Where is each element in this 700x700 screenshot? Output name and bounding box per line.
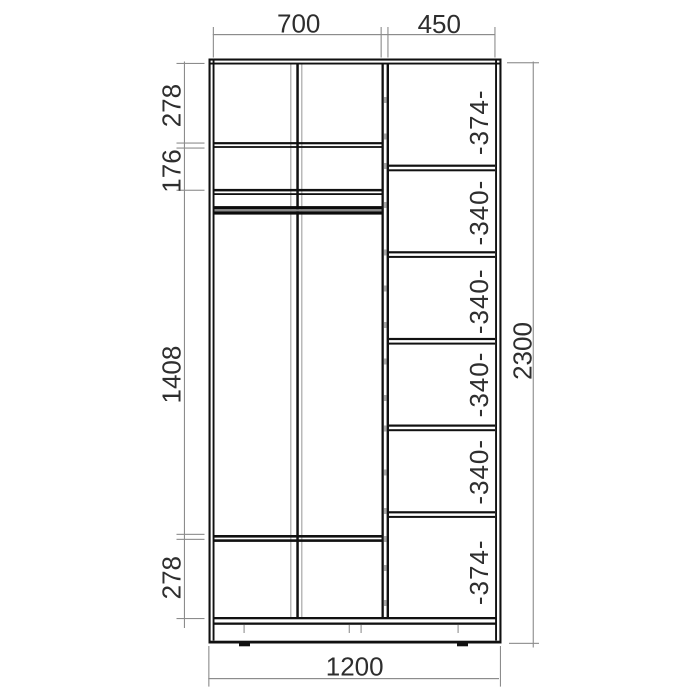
svg-text:-340-: -340- <box>464 352 494 418</box>
svg-text:1200: 1200 <box>326 652 384 682</box>
svg-text:176: 176 <box>156 149 186 192</box>
svg-text:1408: 1408 <box>156 346 186 404</box>
svg-text:2300: 2300 <box>507 322 537 380</box>
svg-text:-374-: -374- <box>464 89 494 155</box>
svg-text:450: 450 <box>418 9 461 39</box>
svg-text:-340-: -340- <box>464 439 494 505</box>
svg-text:278: 278 <box>156 556 186 599</box>
svg-text:-340-: -340- <box>464 180 494 246</box>
svg-text:-340-: -340- <box>464 268 494 334</box>
svg-text:-374-: -374- <box>464 539 494 605</box>
svg-text:700: 700 <box>277 8 320 38</box>
svg-text:278: 278 <box>156 84 186 127</box>
